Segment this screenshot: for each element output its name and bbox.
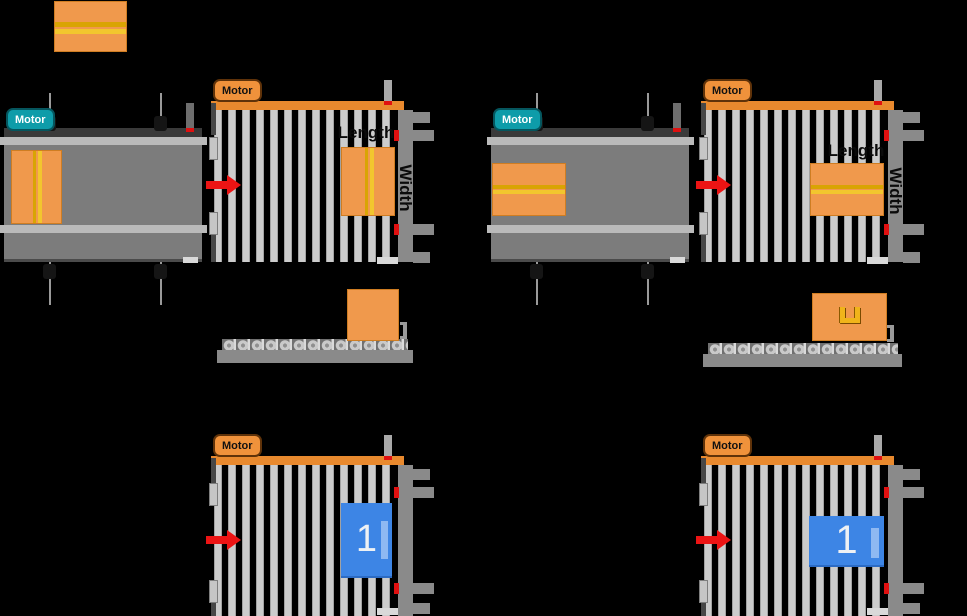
drive-belt <box>211 101 404 110</box>
red-indicator <box>186 128 194 132</box>
conveyor-bottom-edge <box>4 259 202 262</box>
parcel-box-1: 1 <box>341 503 392 578</box>
tape-stripe-yellow <box>370 148 374 215</box>
parcel-highlight <box>871 528 879 558</box>
tape-stripe-yellow <box>55 29 126 34</box>
flow-arrow-right-icon <box>696 175 732 195</box>
width-label: Width <box>885 161 905 221</box>
red-indicator <box>884 130 889 141</box>
roller-conveyor-topview-left: Motor Length Width <box>210 78 445 268</box>
tape-stripe-yellow <box>38 151 42 223</box>
belt-conveyor-sideview-left: Motor <box>0 85 212 310</box>
length-label: Length <box>826 141 886 161</box>
red-indicator <box>394 583 399 594</box>
drive-belt <box>701 101 894 110</box>
sensor-knob <box>641 264 654 279</box>
diagram-canvas: { "labels": { "motor": "Motor", "length"… <box>0 0 967 616</box>
red-indicator <box>874 456 882 460</box>
frame-foot <box>670 257 685 263</box>
motor-badge: Motor <box>213 79 262 102</box>
carton-box-on-belt <box>11 150 62 224</box>
conveyor-platform <box>703 354 902 367</box>
arrow-head <box>227 175 241 195</box>
conveyor-body <box>4 233 202 262</box>
red-indicator <box>384 101 392 105</box>
guide-bracket <box>887 325 894 342</box>
tape-u-icon <box>840 307 860 323</box>
width-label: Width <box>395 158 415 218</box>
arrow-shaft <box>206 536 227 544</box>
frame-rail <box>487 225 694 233</box>
frame-foot <box>867 257 888 264</box>
carton-box-topview <box>341 147 395 216</box>
frame-tab <box>699 580 708 603</box>
flow-arrow-right-icon <box>696 530 732 550</box>
red-indicator <box>884 224 889 235</box>
frame-tab <box>413 603 430 614</box>
frame-tab <box>413 130 434 141</box>
carton-box-on-belt <box>492 163 566 216</box>
frame-tab <box>903 252 920 263</box>
tape-stripe-gold <box>811 185 883 189</box>
motor-badge: Motor <box>6 108 55 131</box>
conveyor-bottom-edge <box>491 259 689 262</box>
roller-conveyor-topview-right: Motor Length Width <box>700 78 935 268</box>
tape-stripe-gold <box>493 185 565 189</box>
tape-stripe-gold <box>55 22 126 27</box>
frame-tab <box>903 487 924 498</box>
frame-tab <box>209 483 218 506</box>
frame-foot <box>183 257 198 263</box>
roller-bed-sideview-left <box>217 285 417 365</box>
frame-tab <box>209 580 218 603</box>
roller-bed-sideview-right <box>703 287 905 367</box>
frame-post <box>211 103 216 135</box>
red-indicator <box>673 128 681 132</box>
frame-tab <box>903 130 924 141</box>
end-post <box>673 103 681 131</box>
frame-tab <box>413 469 430 480</box>
motor-badge: Motor <box>213 434 262 457</box>
sensor-knob <box>530 264 543 279</box>
carton-box-floating <box>54 1 127 52</box>
red-indicator <box>884 487 889 498</box>
red-indicator <box>874 101 882 105</box>
belt-conveyor-sideview-right: Motor <box>487 85 699 310</box>
frame-tab <box>903 469 920 480</box>
sensor-knob <box>43 264 56 279</box>
frame-tab <box>903 583 924 594</box>
frame-rail <box>0 137 207 145</box>
parcel-box-1: 1 <box>809 516 884 567</box>
frame-rail <box>0 225 207 233</box>
roller-conveyor-topview-bottom-left: Motor 1 <box>210 433 445 616</box>
frame-foot <box>867 608 888 615</box>
frame-tab <box>699 212 708 235</box>
tape-stripe-yellow <box>811 190 883 194</box>
frame-tab <box>413 252 430 263</box>
red-indicator <box>394 487 399 498</box>
sensor-knob <box>154 264 167 279</box>
frame-tab <box>699 483 708 506</box>
flow-arrow-right-icon <box>206 530 242 550</box>
length-label: Length <box>336 123 396 143</box>
sensor-knob <box>641 116 654 131</box>
side-rail <box>398 465 413 616</box>
frame-post <box>701 103 706 135</box>
carton-box-topview <box>810 163 884 216</box>
red-indicator <box>884 583 889 594</box>
tape-stripe-gold <box>365 148 368 215</box>
frame-tab <box>413 583 434 594</box>
frame-foot <box>377 608 398 615</box>
arrow-shaft <box>206 181 227 189</box>
arrow-head <box>717 530 731 550</box>
frame-tab <box>413 112 430 123</box>
flow-arrow-right-icon <box>206 175 242 195</box>
frame-tab <box>903 603 920 614</box>
arrow-shaft <box>696 536 717 544</box>
frame-tab <box>209 137 218 160</box>
arrow-head <box>227 530 241 550</box>
roller-conveyor-topview-bottom-right: Motor 1 <box>700 433 935 616</box>
frame-rail <box>487 137 694 145</box>
parcel-highlight <box>381 521 388 559</box>
carton-box-on-rollers <box>812 293 887 341</box>
sensor-knob <box>154 116 167 131</box>
side-rail <box>888 465 903 616</box>
parcel-number: 1 <box>356 518 377 561</box>
frame-tab <box>209 212 218 235</box>
arrow-shaft <box>696 181 717 189</box>
motor-badge: Motor <box>703 434 752 457</box>
arrow-head <box>717 175 731 195</box>
guide-bracket <box>400 322 407 339</box>
drive-belt <box>211 456 404 465</box>
carton-box-on-rollers <box>347 289 399 341</box>
drive-belt <box>701 456 894 465</box>
red-indicator <box>394 224 399 235</box>
conveyor-platform <box>217 350 413 363</box>
frame-tab <box>903 224 924 235</box>
red-indicator <box>384 456 392 460</box>
parcel-number: 1 <box>835 518 857 563</box>
conveyor-body <box>491 233 689 262</box>
end-post <box>186 103 194 131</box>
motor-badge: Motor <box>493 108 542 131</box>
motor-badge: Motor <box>703 79 752 102</box>
tape-stripe-yellow <box>493 190 565 194</box>
frame-tab <box>699 137 708 160</box>
frame-tab <box>413 224 434 235</box>
tape-stripe-gold <box>33 151 36 223</box>
frame-tab <box>413 487 434 498</box>
frame-foot <box>377 257 398 264</box>
frame-tab <box>903 112 920 123</box>
